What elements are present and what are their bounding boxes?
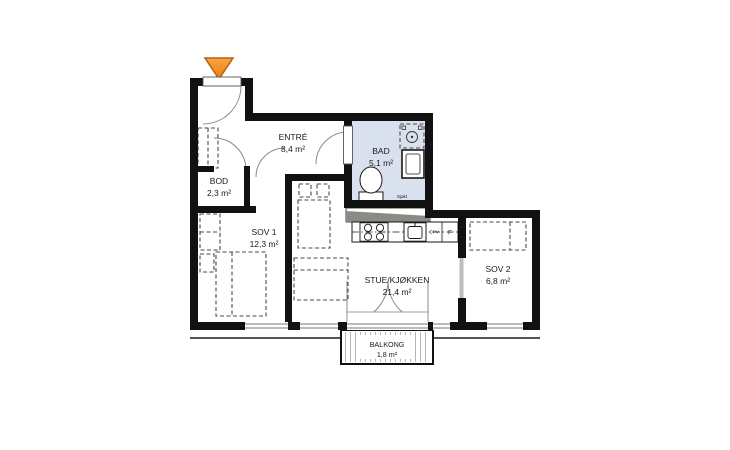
- wall-entre-bottom: [285, 174, 352, 181]
- shaft: [346, 208, 430, 222]
- walls: [190, 78, 540, 330]
- wall-bod-right: [244, 166, 250, 213]
- room-area-balkong: 1,8 m²: [377, 350, 398, 359]
- shaft-label: Sjakt: [397, 194, 408, 199]
- wall-sov2-left-top: [458, 218, 466, 258]
- balcony-door-threshold: [347, 322, 428, 330]
- fridge-label: F: [448, 231, 452, 237]
- toilet-icon: [360, 167, 382, 193]
- room-area-bad: 5,1 m²: [369, 158, 393, 168]
- room-label-stue: STUE/KJØKKEN: [365, 275, 430, 285]
- room-label-balkong: BALKONG: [370, 340, 405, 349]
- sofa: [294, 258, 348, 300]
- wall-sov2-left-bottom: [458, 300, 466, 322]
- window-sov2: [487, 322, 523, 330]
- window-sov1: [245, 322, 288, 330]
- wall-top-entry-left: [190, 78, 203, 86]
- window-stue-left: [300, 322, 338, 330]
- bad-door-leaf: [344, 126, 353, 164]
- wall-bottom-4: [428, 322, 433, 330]
- floorplan-canvas: OPV F: [0, 0, 730, 450]
- dining-table: [298, 200, 330, 248]
- wall-bod-bottom: [190, 206, 256, 213]
- sov2-sliding-door: [458, 254, 466, 302]
- entry-door-leaf: [203, 77, 241, 86]
- room-label-entre: ENTRÉ: [279, 132, 308, 142]
- kitchen-sink-icon: [404, 223, 426, 241]
- wall-bottom-5: [450, 322, 487, 330]
- room-area-entre: 8,4 m²: [281, 144, 305, 154]
- room-label-bad: BAD: [372, 146, 389, 156]
- bod-door-arc: [214, 138, 246, 170]
- wall-sov1-stue: [285, 174, 292, 322]
- wall-bottom-2: [288, 322, 300, 330]
- kitchen-counter: OPV F: [352, 222, 458, 242]
- room-area-sov2: 6,8 m²: [486, 276, 510, 286]
- room-label-sov2: SOV 2: [485, 264, 510, 274]
- entry-arrow-icon: [205, 58, 233, 79]
- sov2-bed: [470, 222, 526, 250]
- balcony-door-sill: [347, 312, 428, 323]
- floorplan-drawing: OPV F: [0, 0, 730, 450]
- dining-chair-2: [317, 184, 329, 197]
- dining-chair-1: [299, 184, 311, 197]
- room-label-bod: BOD: [210, 176, 228, 186]
- wall-top-sov2: [425, 210, 540, 218]
- entry-door-arc: [203, 86, 241, 124]
- wall-bottom-6: [523, 322, 540, 330]
- dishwasher-label: OPV: [429, 230, 440, 235]
- window-stue-right: [433, 322, 450, 330]
- wall-right: [532, 210, 540, 330]
- wall-top-main: [245, 113, 433, 121]
- room-label-sov1: SOV 1: [251, 227, 276, 237]
- wall-left: [190, 78, 198, 330]
- sov1-nightstand: [200, 254, 214, 272]
- wall-bottom-1: [190, 322, 245, 330]
- wall-bottom-3: [338, 322, 347, 330]
- room-area-stue: 21,4 m²: [383, 287, 412, 297]
- wall-bad-bottom: [344, 200, 433, 208]
- wall-bod-top: [198, 166, 214, 172]
- room-area-sov1: 12,3 m²: [250, 239, 279, 249]
- wall-bad-left-top: [344, 121, 352, 126]
- sov1-bed: [216, 252, 266, 316]
- room-area-bod: 2,3 m²: [207, 188, 231, 198]
